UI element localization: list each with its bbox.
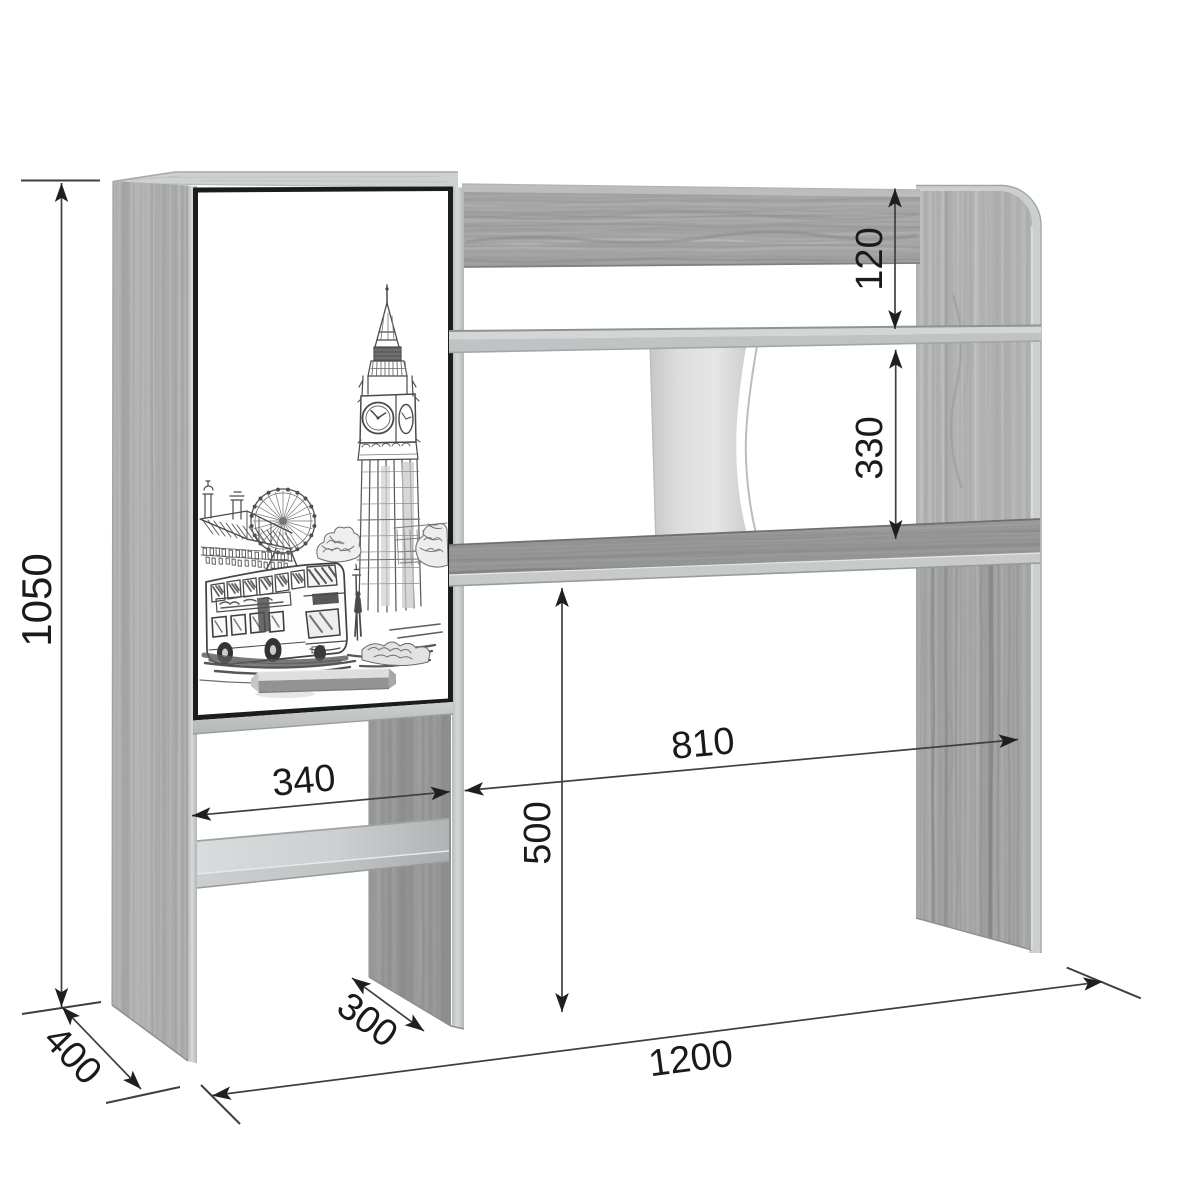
svg-text:500: 500: [517, 801, 559, 864]
svg-text:810: 810: [669, 720, 736, 768]
svg-text:330: 330: [849, 416, 891, 479]
svg-text:1050: 1050: [13, 553, 60, 646]
svg-text:120: 120: [849, 227, 891, 290]
svg-text:340: 340: [270, 757, 337, 805]
